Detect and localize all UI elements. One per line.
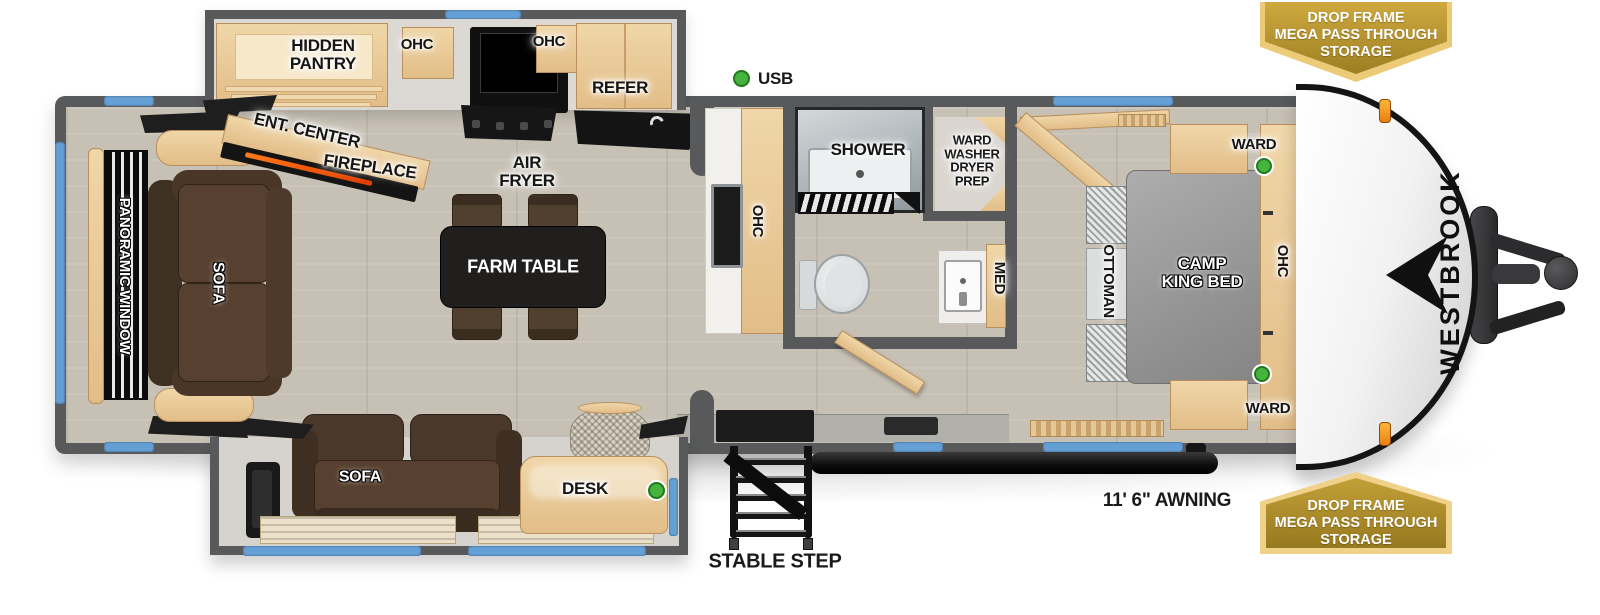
- panoramic-window-label: PANORAMIC WINDOW: [116, 198, 132, 355]
- rear-sofa-label: SOFA: [209, 262, 226, 304]
- island-counter: [705, 108, 789, 334]
- dining-chair: [452, 304, 502, 340]
- toilet-seat: [825, 263, 861, 307]
- ohc-bedroom-label: OHC: [1274, 245, 1290, 277]
- window: [104, 442, 154, 452]
- chair-back: [453, 195, 501, 205]
- farm-table-label: FARM TABLE: [467, 258, 579, 277]
- wall-mounted-item: [884, 417, 938, 435]
- entry-wall-stub: [690, 390, 714, 444]
- window: [893, 442, 943, 452]
- sofa-back-cushion: [148, 180, 182, 386]
- ohc-right-label: OHC: [533, 34, 565, 50]
- island-sink: [711, 184, 743, 268]
- hitch-coupler: [1544, 256, 1578, 290]
- hidden-pantry-label: HIDDEN PANTRY: [290, 37, 356, 73]
- step-rung: [736, 530, 806, 537]
- air-fryer-label: AIR FRYER: [499, 154, 555, 190]
- dining-chair: [528, 194, 578, 230]
- rear-window-frame: [88, 148, 104, 404]
- refer-label: REFER: [592, 79, 648, 97]
- bath-wall-right: [1005, 107, 1017, 349]
- shower-drain: [856, 170, 864, 178]
- bedroom-bench-slats: [1030, 420, 1164, 437]
- sofa-bed-slats: [260, 516, 456, 544]
- ward-top-label: WARD: [1232, 137, 1277, 153]
- ward-washer-label: WARD WASHER DRYER PREP: [944, 134, 999, 189]
- wardrobe-bottom: [1170, 380, 1248, 430]
- cabinet-handle: [1263, 331, 1273, 335]
- burner: [496, 122, 504, 130]
- brand-name: WESTBROOK: [1436, 169, 1464, 375]
- vanity-sink: [944, 260, 982, 312]
- marker-light: [1379, 422, 1391, 446]
- sink-drain: [960, 278, 966, 284]
- window: [243, 546, 421, 556]
- pantry-step-shelf: [225, 86, 383, 92]
- floorplan-canvas: WESTBROOK DROP FRAME MEGA PASS THROUGH S…: [0, 0, 1600, 615]
- sofa-front-roll: [266, 188, 292, 378]
- window: [445, 10, 521, 19]
- usb-port-desk: [648, 482, 665, 499]
- step-foot: [803, 538, 813, 550]
- bed-label: CAMP KING BED: [1162, 255, 1243, 291]
- window: [1043, 442, 1183, 452]
- awning-roll: [810, 452, 1218, 474]
- ward-wall-bottom: [923, 211, 1017, 221]
- dining-chair: [528, 304, 578, 340]
- window: [1053, 96, 1173, 106]
- window: [55, 142, 65, 404]
- desk-chair-back: [578, 402, 642, 414]
- storage-badge-top-label: DROP FRAME MEGA PASS THROUGH STORAGE: [1260, 10, 1452, 61]
- storage-badge-bottom-label: DROP FRAME MEGA PASS THROUGH STORAGE: [1260, 498, 1452, 549]
- step-foot: [729, 538, 739, 550]
- ohc-island-label: OHC: [749, 205, 765, 237]
- vent-slats: [1118, 114, 1166, 127]
- closet-shelf: [980, 185, 1005, 211]
- chair-back: [529, 329, 577, 339]
- window: [104, 96, 154, 106]
- shower-threshold: [798, 192, 894, 214]
- window: [669, 478, 678, 536]
- desk-label: DESK: [562, 480, 608, 498]
- chair-back: [453, 329, 501, 339]
- burner: [520, 122, 528, 130]
- med-label: MED: [991, 262, 1007, 294]
- ottoman-cushion: [1086, 324, 1130, 382]
- usb-port-bedroom-top: [1256, 158, 1272, 174]
- hitch-arm: [1488, 300, 1567, 336]
- dining-chair: [452, 194, 502, 230]
- hitch-jack: [1492, 264, 1540, 284]
- ottoman-cushion: [1086, 186, 1130, 244]
- cabinet-handle: [1263, 211, 1273, 215]
- bath-wall-left: [783, 107, 795, 349]
- sink-faucet: [959, 292, 967, 306]
- burner: [472, 120, 480, 128]
- slide-sofa-label: SOFA: [339, 470, 381, 487]
- entry-step-well: [716, 410, 814, 442]
- usb-indicator-dot: [733, 70, 750, 87]
- chair-back: [529, 195, 577, 205]
- storage-badge-top: DROP FRAME MEGA PASS THROUGH STORAGE: [1260, 2, 1452, 82]
- shower-label: SHOWER: [831, 141, 906, 159]
- bath-wall-bottom: [783, 337, 1017, 349]
- ohc-left-label: OHC: [401, 37, 433, 53]
- usb-port-bedroom-bottom: [1254, 366, 1270, 382]
- marker-light: [1379, 99, 1391, 123]
- burner: [544, 120, 552, 128]
- usb-callout: USB: [758, 70, 793, 88]
- ward-bottom-label: WARD: [1246, 401, 1291, 417]
- window: [468, 546, 646, 556]
- stable-step-callout: STABLE STEP: [708, 552, 841, 573]
- ottoman-label: OTTOMAN: [1100, 244, 1116, 317]
- awning-callout: 11' 6" AWNING: [1103, 491, 1231, 511]
- toilet-bowl: [814, 254, 870, 314]
- desk-chair: [570, 408, 650, 462]
- stable-step: [726, 446, 818, 548]
